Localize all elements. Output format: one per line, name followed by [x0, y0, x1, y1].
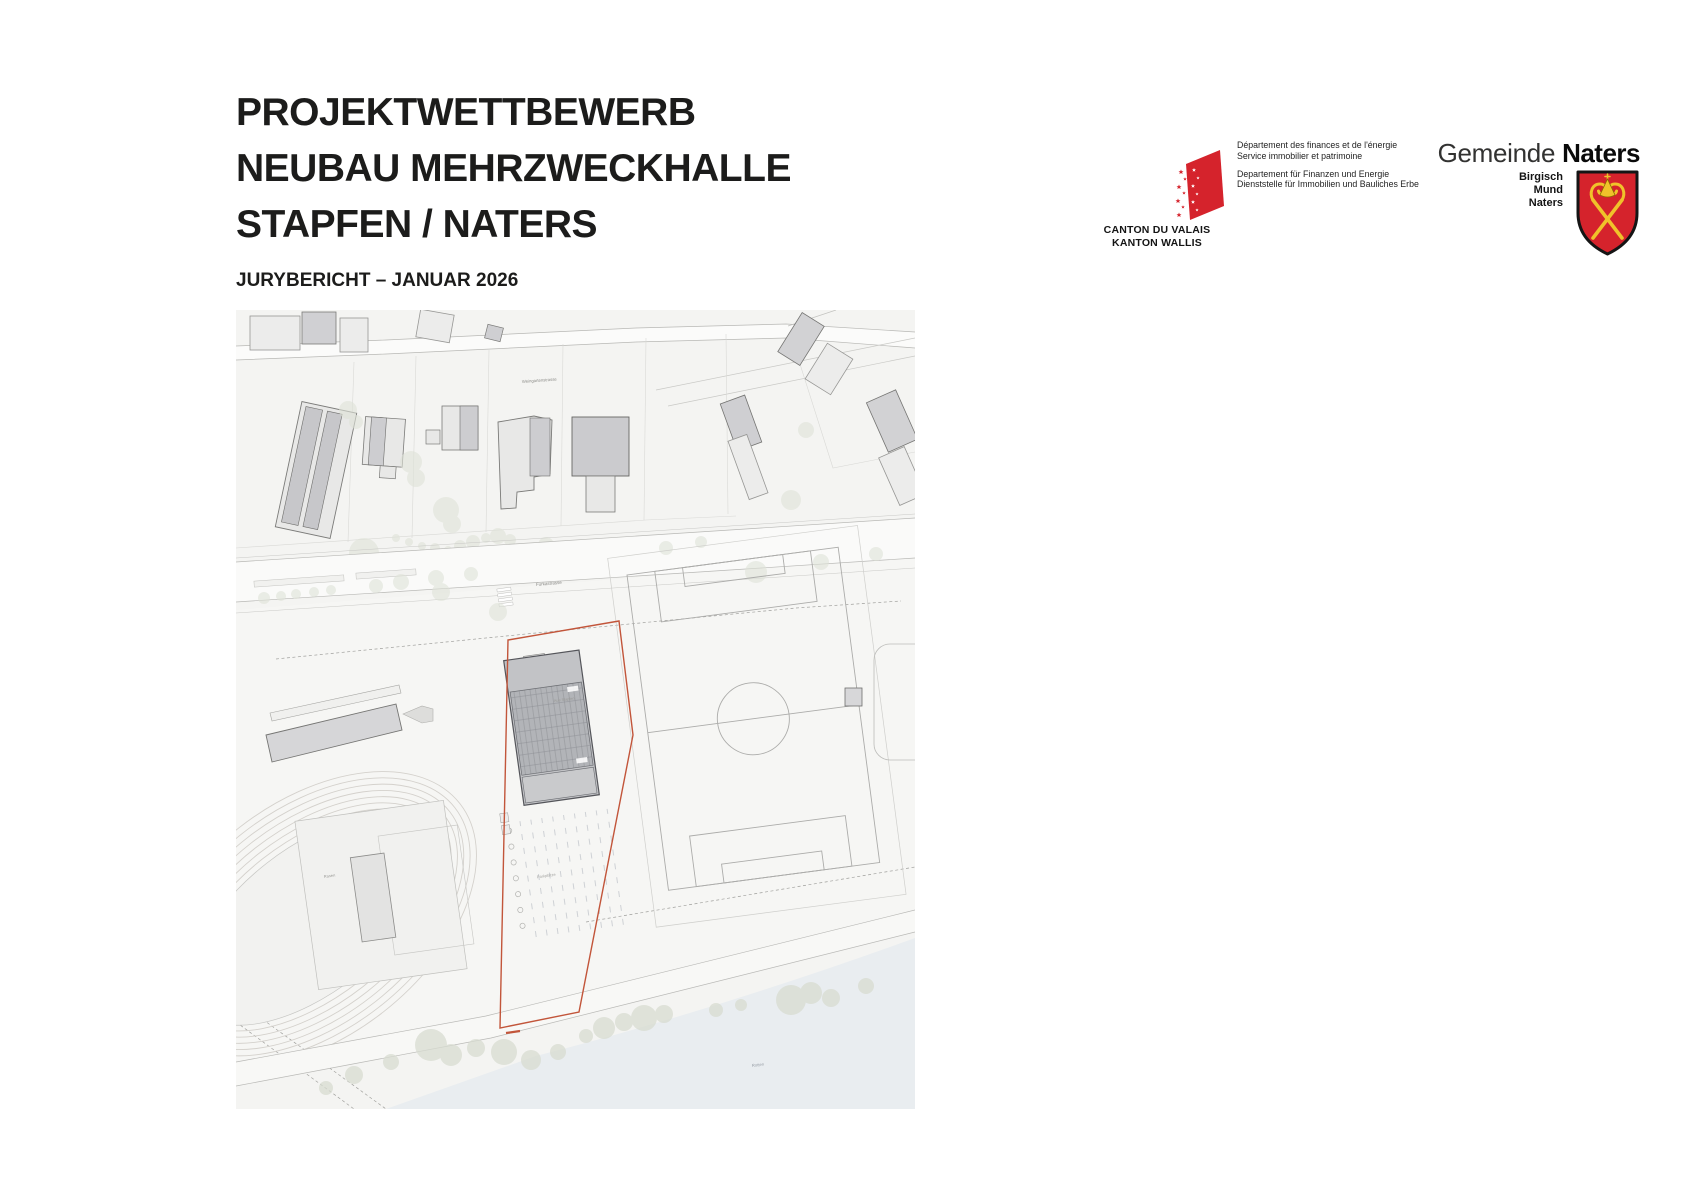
- caption-de: KANTON WALLIS: [1098, 237, 1216, 250]
- naters-coat-of-arms-icon: [1572, 167, 1643, 259]
- village-birgisch: Birgisch: [1519, 171, 1563, 184]
- dept-fr-line1: Département des finances et de l'énergie: [1237, 140, 1419, 151]
- naters-text: Naters: [1562, 138, 1640, 168]
- canton-valais-caption: CANTON DU VALAIS KANTON WALLIS: [1098, 224, 1216, 249]
- subtitle: JURYBERICHT – JANUAR 2026: [236, 270, 518, 292]
- small-utility-building: [845, 688, 862, 706]
- title-line-3: STAPFEN / NATERS: [236, 197, 791, 253]
- dept-de-line2: Dienststelle für Immobilien und Bauliche…: [1237, 179, 1419, 190]
- village-naters: Naters: [1519, 197, 1563, 210]
- gemeinde-text: Gemeinde: [1438, 138, 1556, 168]
- caption-fr: CANTON DU VALAIS: [1098, 224, 1216, 237]
- title-line-1: PROJEKTWETTBEWERB: [236, 85, 791, 141]
- site-plan-map: Parkplätze: [236, 310, 915, 1109]
- dept-fr-line2: Service immobilier et patrimoine: [1237, 151, 1419, 162]
- village-mund: Mund: [1519, 184, 1563, 197]
- page-title: PROJEKTWETTBEWERB NEUBAU MEHRZWECKHALLE …: [236, 85, 791, 253]
- department-text: Département des finances et de l'énergie…: [1237, 140, 1419, 190]
- dept-de-line1: Departement für Finanzen und Energie: [1237, 169, 1419, 180]
- jury-report-cover-page: PROJEKTWETTBEWERB NEUBAU MEHRZWECKHALLE …: [0, 0, 1684, 1191]
- flag-red-stars: [1176, 170, 1187, 218]
- title-line-2: NEUBAU MEHRZWECKHALLE: [236, 141, 791, 197]
- naters-villages: Birgisch Mund Naters: [1519, 171, 1563, 210]
- gemeinde-naters-wordmark: Gemeinde Naters: [1438, 138, 1640, 169]
- canton-valais-flag-icon: [1170, 142, 1230, 226]
